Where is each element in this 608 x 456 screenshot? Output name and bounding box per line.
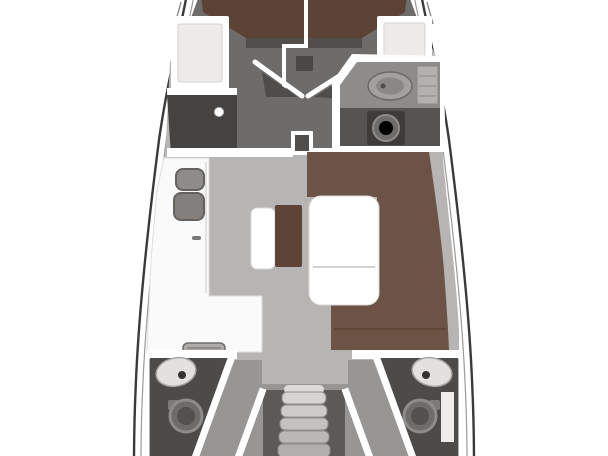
stair-tread — [281, 405, 327, 417]
stair-tread — [282, 392, 326, 404]
galley-fitting — [192, 236, 201, 240]
sink-drain — [422, 371, 430, 379]
bench-backrest — [275, 205, 302, 267]
sink-drain — [381, 84, 386, 89]
aft-bulkhead-starboard — [352, 350, 460, 359]
locker-wall — [167, 88, 237, 95]
galley-sink-icon — [174, 193, 204, 220]
wardrobe — [167, 95, 237, 155]
toilet-bowl — [379, 121, 393, 135]
stair-tread — [278, 444, 330, 456]
forward-head — [332, 54, 446, 152]
cabin-doorway-step — [293, 133, 311, 153]
stair-tread — [280, 418, 328, 430]
sink-drain — [178, 371, 186, 379]
aft-bulkhead-port — [147, 350, 237, 359]
head-cabinet — [417, 66, 438, 104]
saloon-table — [309, 196, 379, 305]
yacht-floorplan — [0, 0, 608, 456]
bench-seat — [251, 208, 275, 269]
locker-inner — [178, 24, 222, 82]
sink-basin — [376, 78, 404, 95]
wardrobe-knob-icon — [215, 108, 224, 117]
centerline — [304, 0, 308, 46]
toilet-bowl — [177, 407, 195, 425]
toilet-bowl — [411, 407, 429, 425]
stair-tread — [279, 431, 329, 443]
forward-bulkhead-port — [167, 148, 293, 157]
port-locker — [167, 16, 237, 95]
wardrobe-body — [167, 95, 237, 155]
galley-sink-icon — [176, 169, 204, 190]
floorplan-canvas — [0, 0, 608, 456]
locker-inner — [384, 23, 425, 56]
head-locker — [441, 392, 454, 442]
hatch-shadow — [296, 56, 313, 71]
